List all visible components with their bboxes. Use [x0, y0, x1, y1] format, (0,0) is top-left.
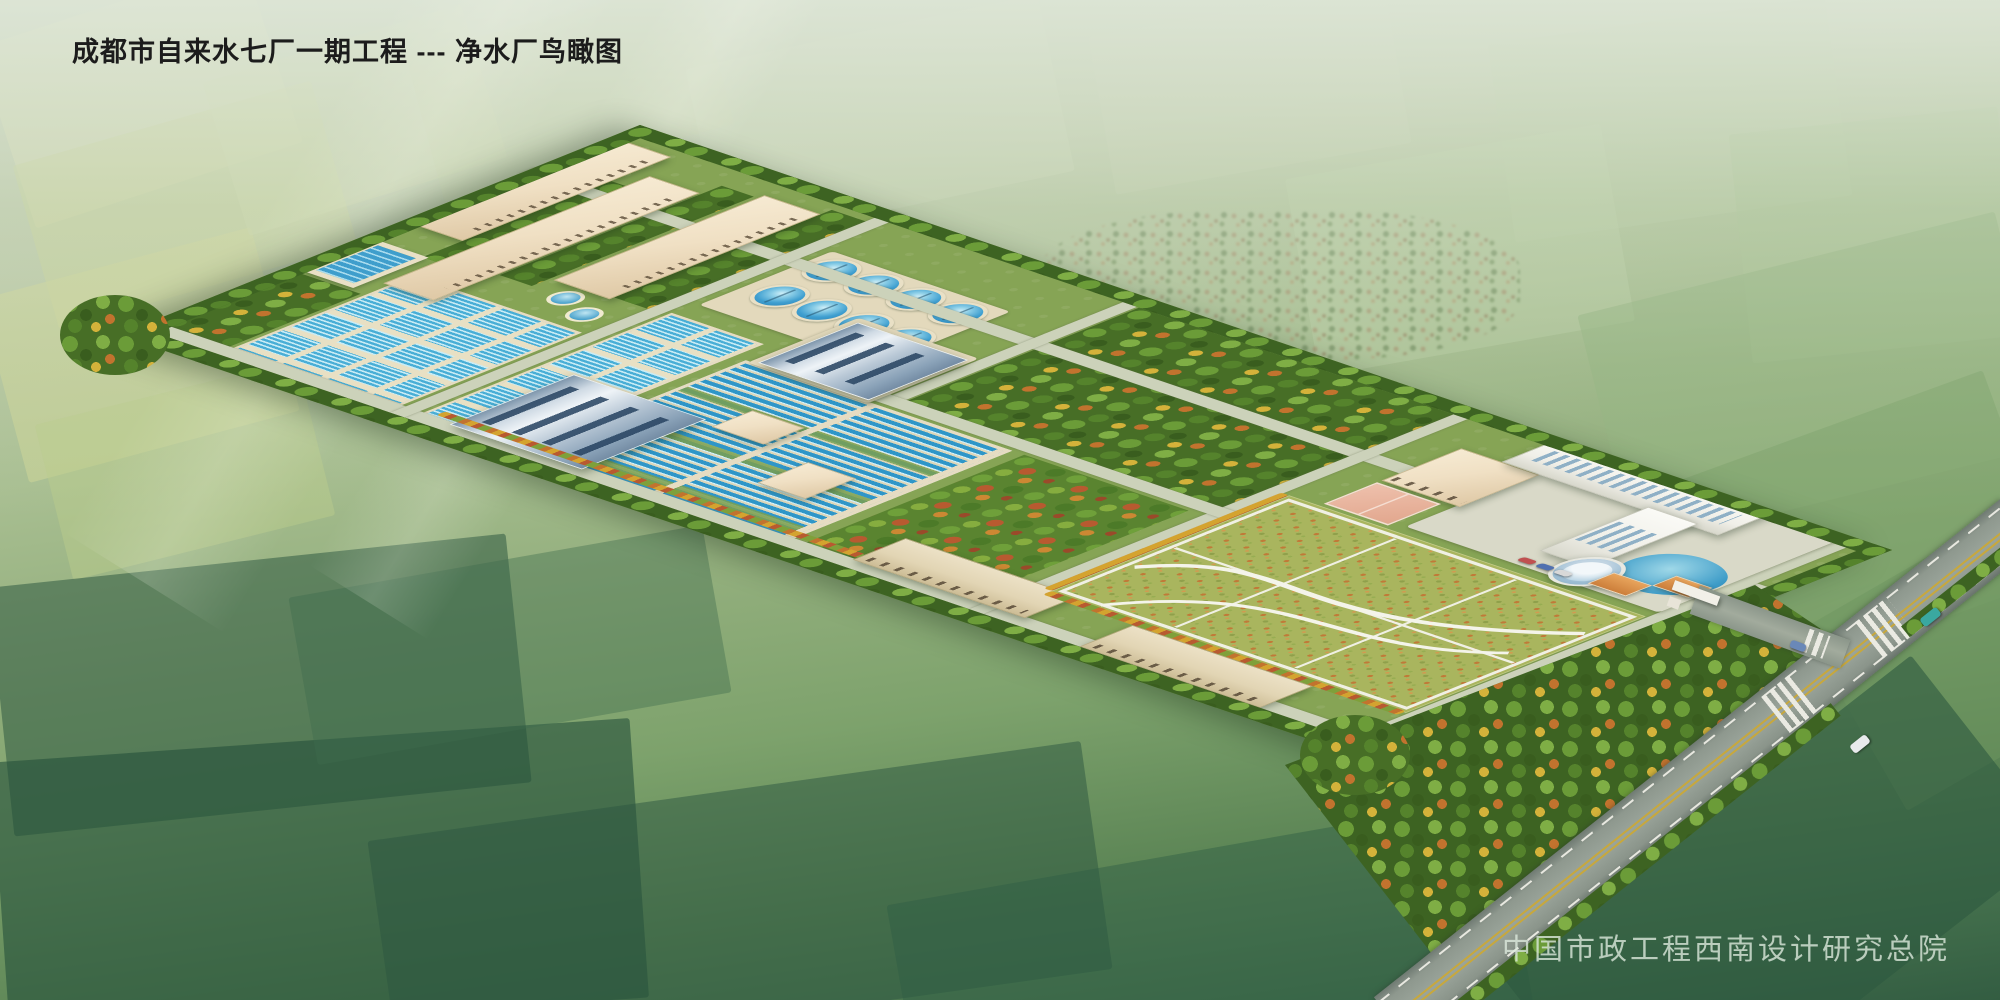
- crosswalk: [1802, 629, 1831, 659]
- tree-clump-west-corner: [60, 295, 170, 375]
- aerial-rendering: 成都市自来水七厂一期工程 --- 净水厂鸟瞰图 中国市政工程西南设计研究总院: [0, 0, 2000, 1000]
- design-institute-credit: 中国市政工程西南设计研究总院: [1502, 926, 1950, 968]
- tree-clump-south-corner: [1300, 715, 1410, 795]
- page-title: 成都市自来水七厂一期工程 --- 净水厂鸟瞰图: [72, 30, 623, 69]
